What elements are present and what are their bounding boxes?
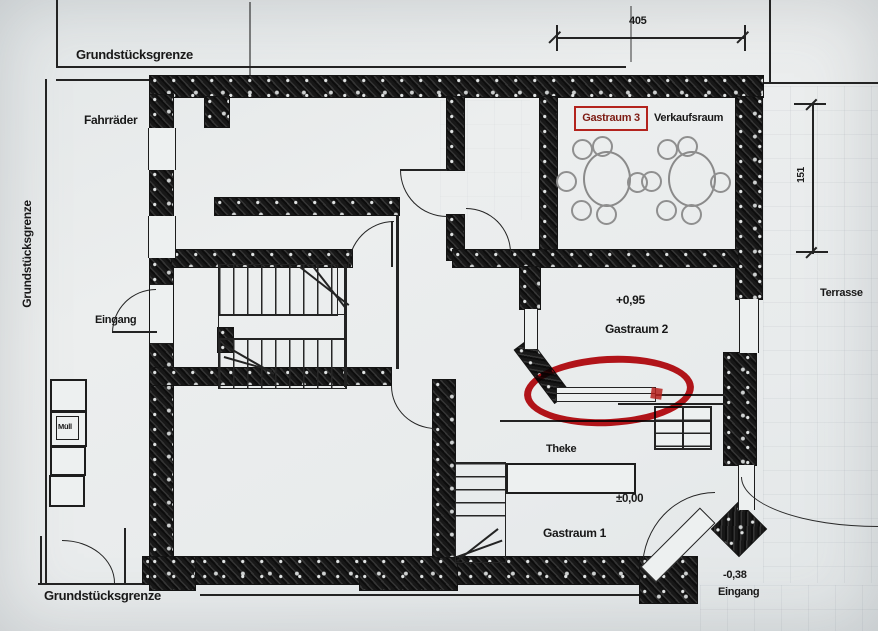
- door-leaf: [391, 221, 393, 267]
- window-left-2: [148, 216, 176, 258]
- window-right-1: [739, 299, 759, 353]
- chair: [592, 136, 613, 157]
- dimension-line-top: [557, 37, 745, 39]
- verkaufsraum-label: Verkaufsraum: [654, 113, 723, 124]
- eingang-side-label: Eingang: [95, 315, 136, 326]
- wall-corner-pier: [712, 502, 766, 556]
- gastraum3-label: Gastraum 3: [582, 113, 640, 124]
- wall-gastraum1-left: [433, 380, 455, 557]
- storage-box: [49, 475, 85, 507]
- stair-enclosure-wall: [344, 264, 347, 387]
- dimension-value-top: 405: [629, 16, 646, 27]
- gate-post-line: [40, 536, 42, 583]
- door-leaf: [112, 331, 157, 333]
- boundary-line-top: [56, 66, 626, 68]
- wall-interior-horizontal: [215, 198, 399, 215]
- chair: [710, 172, 731, 193]
- gastraum2-level-label: +0,95: [616, 294, 645, 306]
- wall-pier: [150, 557, 195, 590]
- door-arc: [348, 221, 394, 268]
- thin-partition-wall: [396, 215, 399, 369]
- muell-label: Müll: [58, 423, 72, 431]
- entrance-level-label: -0,38: [723, 570, 747, 581]
- dimension-end-tick: [744, 25, 746, 51]
- gastraum3-red-box: Gastraum 3: [574, 106, 648, 131]
- outer-step-line: [200, 594, 697, 596]
- gate-post-line: [124, 528, 126, 583]
- boundary-line-top-left-vertical: [56, 0, 58, 68]
- wall-top: [150, 76, 763, 97]
- boundary-label-left: Grundstücksgrenze: [21, 194, 33, 314]
- wall-corridor-vertical: [447, 97, 464, 170]
- corner-door-swing-arc: [741, 477, 878, 527]
- wall-right-lower: [724, 353, 756, 465]
- eingang-corner-label: Eingang: [718, 587, 759, 598]
- table-oval: [668, 151, 716, 207]
- chair: [681, 204, 702, 225]
- boundary-label-top: Grundstücksgrenze: [76, 48, 193, 61]
- winder-stair-treads: [455, 462, 506, 519]
- wall-gastraum2-left: [520, 267, 540, 309]
- boundary-label-bottom: Grundstücksgrenze: [44, 589, 161, 602]
- theke-label: Theke: [546, 444, 576, 455]
- wall-right-upper: [736, 97, 762, 299]
- door-arc: [391, 386, 436, 429]
- storage-box: [50, 446, 86, 476]
- chair: [556, 171, 577, 192]
- window-left-1: [148, 128, 176, 170]
- chair: [641, 171, 662, 192]
- door-leaf: [400, 169, 447, 171]
- gastraum2-label: Gastraum 2: [605, 323, 668, 335]
- boundary-line-right-vertical: [769, 0, 771, 84]
- chair: [656, 200, 677, 221]
- door-arc: [400, 170, 447, 217]
- terrasse-label: Terrasse: [820, 288, 863, 299]
- scan-crease-line: [249, 2, 251, 76]
- window-gastraum2-left: [524, 309, 538, 349]
- staircase-upper-flight: [218, 264, 338, 316]
- chair: [571, 200, 592, 221]
- chair: [657, 139, 678, 160]
- dimension-value-right: 151: [797, 152, 807, 198]
- gastraum1-level-label: ±0,00: [616, 494, 643, 506]
- dimension-end-tick: [556, 25, 558, 51]
- gastraum1-label: Gastraum 1: [543, 527, 606, 539]
- terrace-edge-line: [762, 82, 878, 84]
- door-arc-left-entrance: [112, 289, 156, 333]
- wall-pier: [360, 557, 457, 590]
- storage-box: [50, 379, 87, 412]
- staircase-lower-flight: [218, 338, 347, 389]
- table-oval: [583, 151, 631, 207]
- boundary-line-top-second: [56, 79, 152, 81]
- chair: [572, 139, 593, 160]
- boundary-line-left: [45, 79, 47, 584]
- wall-stub: [205, 97, 229, 127]
- fahrraeder-label: Fahrräder: [84, 114, 137, 126]
- gate-arc: [62, 540, 115, 583]
- floor-plan-document: 405 151: [0, 0, 878, 631]
- chair: [596, 204, 617, 225]
- staircase-landing: [218, 314, 347, 340]
- wall-verkaufsraum-vertical: [540, 97, 557, 249]
- dimension-line-right: [812, 104, 814, 254]
- theke-counter: [506, 463, 636, 494]
- chair: [677, 136, 698, 157]
